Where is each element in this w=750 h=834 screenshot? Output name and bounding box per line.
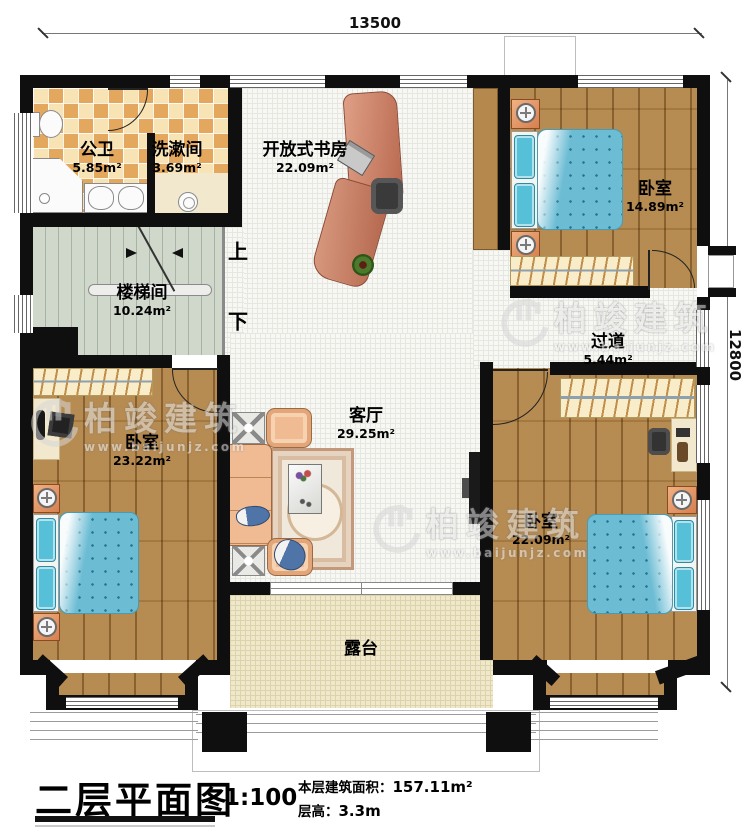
decor-object bbox=[36, 410, 45, 440]
pillow bbox=[514, 183, 535, 227]
sink-basin bbox=[88, 186, 114, 210]
desk-item bbox=[677, 442, 688, 462]
floor-height-text: 层高：3.3m bbox=[298, 800, 381, 820]
flue-outline bbox=[504, 36, 576, 80]
side-table bbox=[232, 412, 265, 444]
coffee-table bbox=[288, 464, 322, 514]
bedroom-br-bay-floor bbox=[546, 673, 664, 697]
lamp bbox=[37, 488, 57, 508]
railing-left bbox=[30, 712, 198, 740]
window bbox=[696, 385, 711, 463]
pillow bbox=[36, 518, 56, 562]
stair-direction-arrow bbox=[172, 248, 183, 258]
window bbox=[170, 75, 200, 88]
shower-drain bbox=[39, 193, 50, 204]
wall bbox=[697, 297, 710, 310]
lamp bbox=[672, 490, 692, 510]
tv-stand bbox=[462, 478, 469, 498]
toilet-bowl bbox=[39, 110, 63, 138]
wall bbox=[20, 213, 242, 227]
dimension-tick bbox=[720, 71, 731, 82]
window bbox=[66, 697, 178, 708]
floor-area-text: 本层建筑面积：157.11m² bbox=[298, 776, 473, 796]
room-label-stairwell: 楼梯间 10.24m² bbox=[113, 284, 171, 318]
title-underline bbox=[35, 816, 215, 822]
sofa bbox=[224, 444, 272, 546]
stairs-down-label: 下 bbox=[228, 311, 248, 334]
niche-wall bbox=[708, 246, 736, 255]
porch-pillar bbox=[202, 712, 247, 752]
lamp bbox=[37, 617, 57, 637]
wall bbox=[217, 355, 230, 675]
desk-item bbox=[676, 428, 690, 437]
room-label-living: 客厅 29.25m² bbox=[337, 407, 395, 441]
plan-scale: 1:100 bbox=[224, 785, 297, 811]
wall bbox=[480, 362, 493, 660]
window bbox=[550, 697, 658, 708]
wall bbox=[697, 463, 710, 500]
right-dimension-value: 12800 bbox=[726, 329, 744, 381]
wall bbox=[467, 75, 578, 88]
wall bbox=[20, 355, 172, 368]
side-table bbox=[232, 546, 265, 576]
room-label-bedroom-bl: 卧室 23.22m² bbox=[113, 434, 171, 468]
stair-edge bbox=[222, 227, 225, 355]
stairs-up-label: 上 bbox=[228, 241, 248, 264]
window bbox=[14, 295, 33, 333]
title-underline-light bbox=[35, 825, 215, 827]
window bbox=[230, 75, 325, 88]
wall bbox=[20, 75, 33, 113]
wall bbox=[668, 660, 710, 675]
wardrobe bbox=[33, 368, 153, 396]
wardrobe bbox=[560, 378, 695, 418]
wall bbox=[453, 582, 493, 595]
bed-sheet-fold bbox=[60, 513, 98, 613]
sliding-door bbox=[270, 582, 453, 595]
wall bbox=[196, 660, 230, 675]
wall bbox=[20, 75, 170, 88]
railing-center bbox=[196, 714, 536, 740]
porch-pillar bbox=[486, 712, 531, 752]
room-label-hallway: 过道 5.44m² bbox=[583, 333, 632, 367]
wall bbox=[325, 75, 400, 88]
bed-sheet-fold bbox=[538, 130, 578, 229]
floor-plan: 13500 12800 bbox=[0, 0, 750, 834]
wall bbox=[510, 286, 650, 298]
pillow bbox=[674, 567, 694, 610]
wall bbox=[20, 333, 33, 660]
right-dimension-line bbox=[727, 80, 728, 688]
window bbox=[14, 113, 33, 213]
niche bbox=[708, 255, 734, 288]
lamp bbox=[516, 235, 536, 255]
bed-sheet-fold bbox=[634, 515, 672, 613]
wall bbox=[228, 582, 270, 595]
sink-basin bbox=[118, 186, 144, 210]
window bbox=[696, 310, 711, 367]
stair-direction-arrow bbox=[126, 248, 137, 258]
plant bbox=[352, 254, 374, 276]
wall bbox=[697, 75, 710, 246]
wall-wood bbox=[473, 88, 498, 250]
top-dimension-line bbox=[42, 33, 702, 34]
wall bbox=[200, 75, 230, 88]
niche-wall bbox=[708, 288, 736, 297]
wall bbox=[228, 88, 242, 227]
pillow bbox=[514, 135, 535, 179]
window bbox=[578, 75, 683, 88]
room-label-washroom: 洗漱间 3.69m² bbox=[152, 141, 203, 175]
top-dimension-value: 13500 bbox=[349, 14, 401, 32]
room-label-bedroom-br: 卧室 22.09m² bbox=[512, 513, 570, 547]
window bbox=[400, 75, 467, 88]
armchair bbox=[266, 408, 312, 448]
room-label-bedroom-tr: 卧室 14.89m² bbox=[626, 180, 684, 214]
door-leaf bbox=[648, 250, 650, 290]
bedroom-bl-bay-floor bbox=[58, 673, 186, 697]
window bbox=[697, 500, 711, 610]
pillow bbox=[674, 520, 694, 563]
office-chair bbox=[371, 178, 403, 214]
room-label-study: 开放式书房 22.09m² bbox=[263, 141, 348, 175]
wall bbox=[697, 367, 710, 385]
pillow bbox=[36, 566, 56, 610]
door-leaf bbox=[493, 369, 548, 371]
room-label-bathroom: 公卫 5.85m² bbox=[72, 141, 121, 175]
dimension-tick bbox=[720, 681, 731, 692]
tv bbox=[47, 411, 74, 438]
wall bbox=[498, 88, 510, 250]
desk-chair bbox=[648, 428, 670, 455]
wardrobe bbox=[510, 256, 634, 286]
lamp bbox=[516, 103, 536, 123]
room-label-terrace: 露台 bbox=[344, 640, 378, 660]
round-sink-basin bbox=[183, 197, 195, 209]
